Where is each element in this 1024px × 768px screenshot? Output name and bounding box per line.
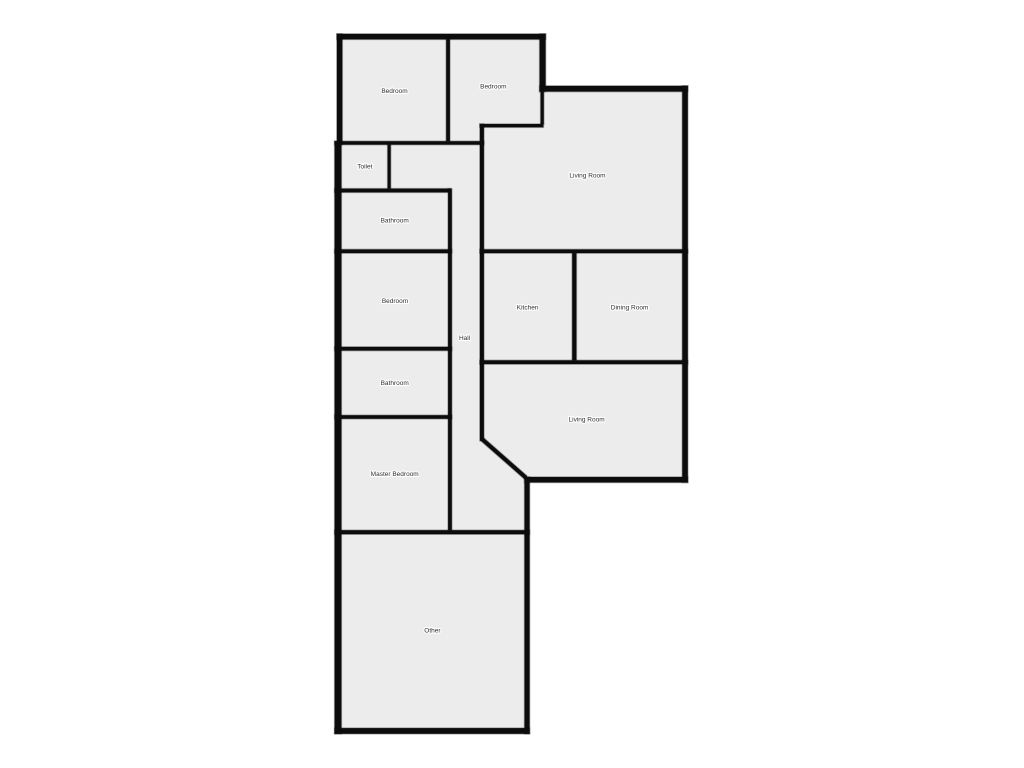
svg-text:Hall: Hall [459, 335, 471, 342]
svg-text:Toilet: Toilet [357, 164, 372, 171]
svg-text:Dining Room: Dining Room [611, 305, 649, 312]
svg-text:Kitchen: Kitchen [517, 305, 539, 312]
svg-text:Bathroom: Bathroom [381, 217, 409, 224]
svg-text:Other: Other [424, 628, 441, 635]
svg-text:Master Bedroom: Master Bedroom [371, 471, 419, 478]
svg-text:Living Room: Living Room [569, 416, 605, 423]
svg-text:Bedroom: Bedroom [480, 84, 506, 91]
svg-text:Bedroom: Bedroom [382, 298, 408, 305]
svg-text:Living Room: Living Room [569, 173, 605, 180]
svg-text:Bedroom: Bedroom [381, 88, 407, 95]
svg-text:Bathroom: Bathroom [381, 380, 409, 387]
